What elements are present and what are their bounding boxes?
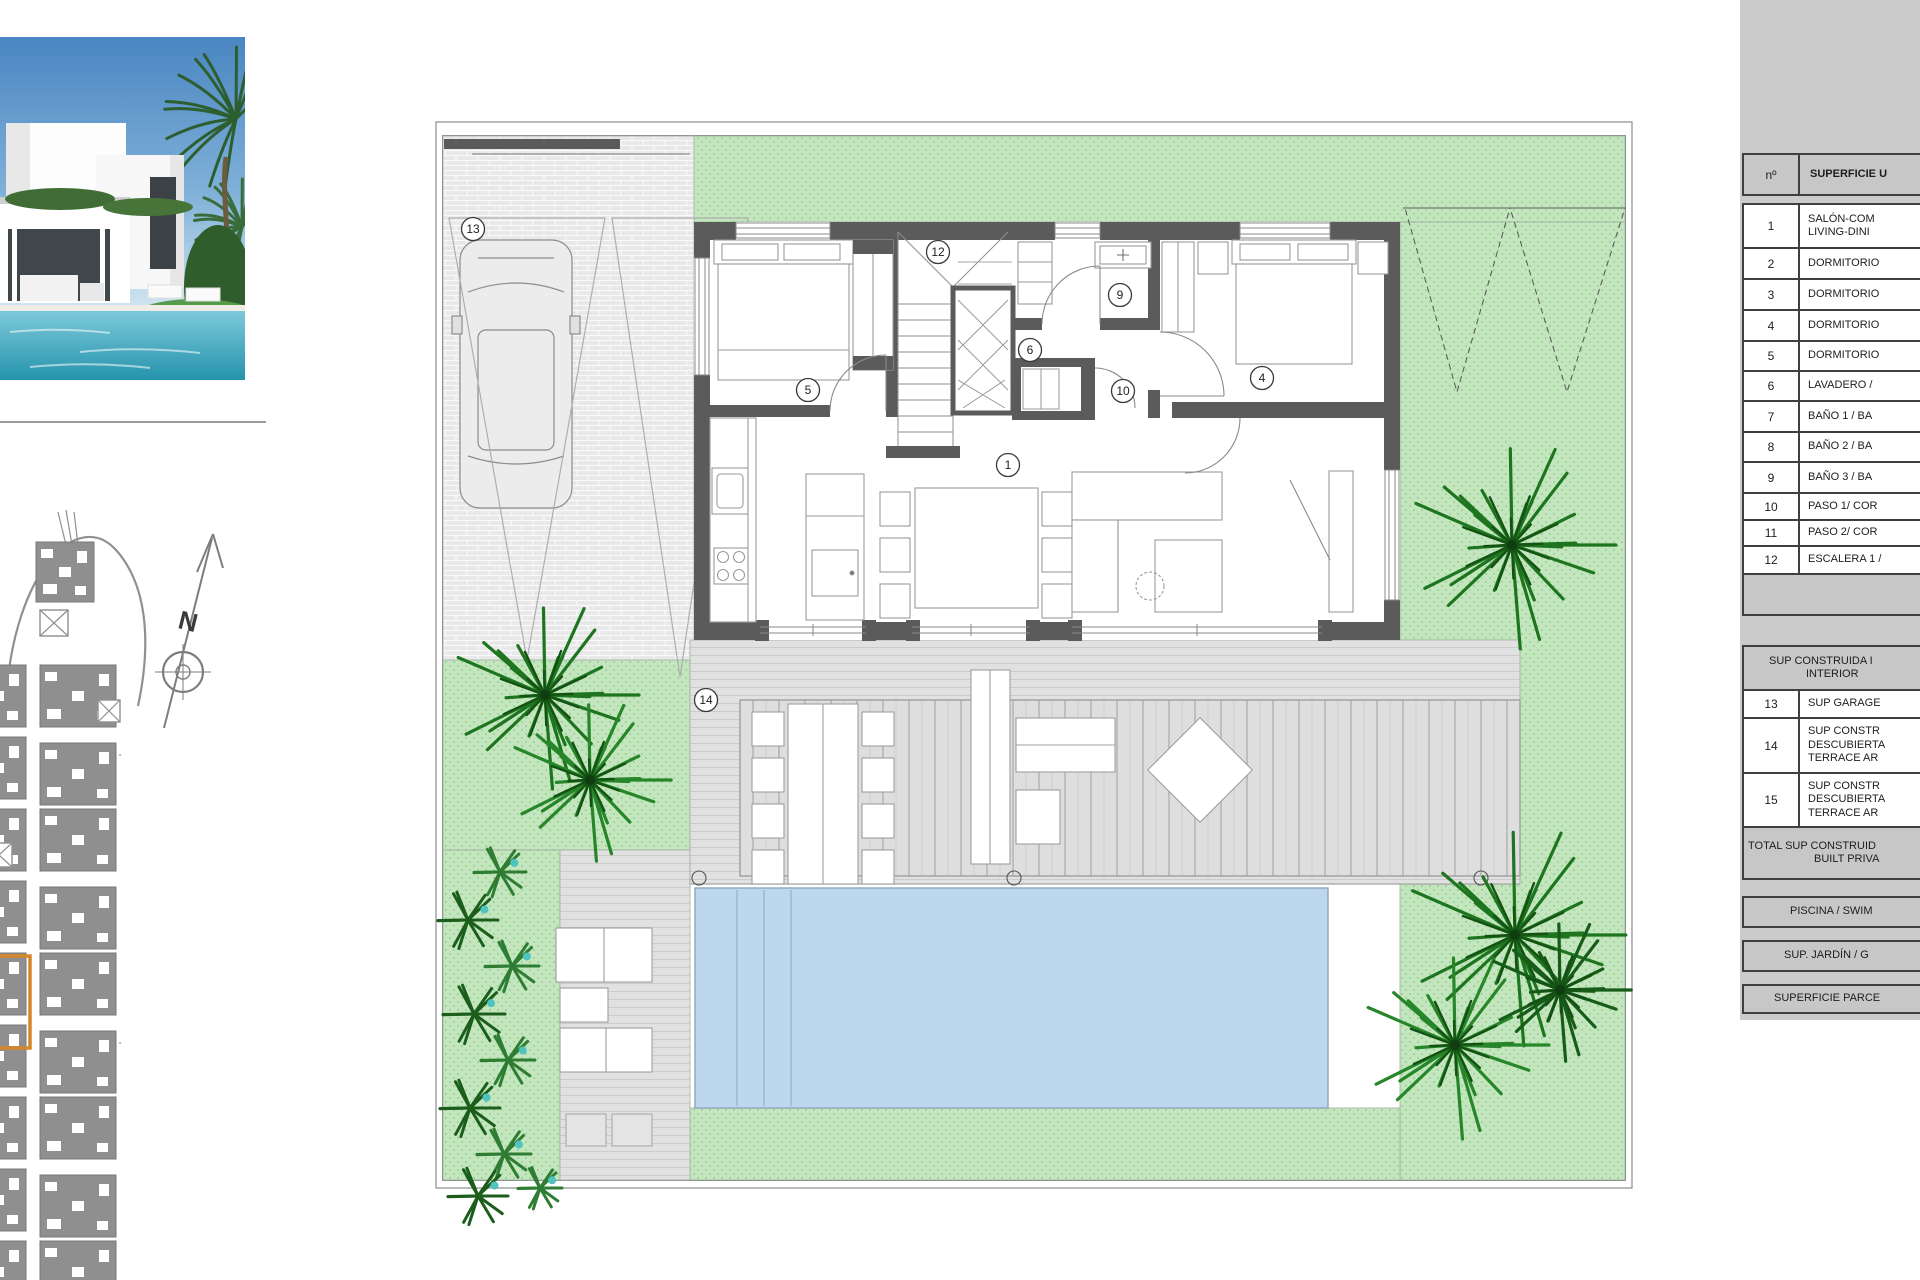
table-row-number: 6 xyxy=(1744,372,1800,400)
floor-plan-canvas: N 1312956104114 xyxy=(0,0,1920,1280)
table-row-number: 2 xyxy=(1744,249,1800,278)
table-row-label: SUP. JARDÍN / G xyxy=(1744,942,1920,970)
garden-top xyxy=(690,136,1625,222)
table-row-label: ESCALERA 1 / xyxy=(1800,547,1920,573)
table-row-label: SUPERFICIE U xyxy=(1800,155,1920,194)
table-row-number: 5 xyxy=(1744,342,1800,370)
table-row-label: DORMITORIO xyxy=(1800,280,1920,309)
table-row: SUP. JARDÍN / G xyxy=(1742,940,1920,970)
table-row-label xyxy=(1742,616,1920,645)
site-unit xyxy=(0,1241,26,1280)
table-row xyxy=(1742,614,1920,645)
site-unit xyxy=(40,809,116,871)
svg-text:1: 1 xyxy=(1005,458,1012,472)
table-row: 1SALÓN-COMLIVING-DINI xyxy=(1742,203,1920,247)
table-row-label: DORMITORIO xyxy=(1800,249,1920,278)
table-row: 10PASO 1/ COR xyxy=(1742,492,1920,519)
room-label-12: 12 xyxy=(927,241,950,264)
table-row: 14SUP CONSTRDESCUBIERTATERRACE AR xyxy=(1742,717,1920,772)
site-plan: N xyxy=(0,510,223,1280)
room-label-6: 6 xyxy=(1019,339,1042,362)
table-row-number: 12 xyxy=(1744,547,1800,573)
table-row-label xyxy=(1742,928,1920,940)
site-unit xyxy=(40,743,116,805)
table-row: 3DORMITORIO xyxy=(1742,278,1920,309)
table-row-label: BAÑO 1 / BA xyxy=(1800,402,1920,431)
table-row: 5DORMITORIO xyxy=(1742,340,1920,370)
table-row-label: DORMITORIO xyxy=(1800,342,1920,370)
entrance-gate-wall xyxy=(444,139,620,149)
table-row-label xyxy=(1742,880,1920,896)
table-row: 8BAÑO 2 / BA xyxy=(1742,431,1920,461)
svg-text:4: 4 xyxy=(1259,371,1266,385)
table-row: 4DORMITORIO xyxy=(1742,309,1920,340)
site-unit xyxy=(40,1241,116,1280)
garden-left-patch xyxy=(443,647,690,850)
table-row: 13SUP GARAGE xyxy=(1742,689,1920,717)
table-row: 15SUP CONSTRDESCUBIERTATERRACE AR xyxy=(1742,772,1920,826)
room-label-1: 1 xyxy=(997,454,1020,477)
table-row-label: TOTAL SUP CONSTRUIDBUILT PRIVA xyxy=(1744,828,1920,878)
table-row-number: 9 xyxy=(1744,463,1800,492)
site-unit xyxy=(40,1031,116,1093)
svg-text:6: 6 xyxy=(1027,343,1034,357)
table-row: SUPERFICIE PARCE xyxy=(1742,984,1920,1014)
table-row: 6LAVADERO / xyxy=(1742,370,1920,400)
table-row-label: SUP CONSTRDESCUBIERTATERRACE AR xyxy=(1800,774,1920,826)
table-row-label: SUP CONSTRDESCUBIERTATERRACE AR xyxy=(1800,719,1920,772)
room-label-14: 14 xyxy=(695,689,718,712)
site-unit xyxy=(0,881,26,943)
table-row-label: SALÓN-COMLIVING-DINI xyxy=(1800,205,1920,247)
table-row-number: 3 xyxy=(1744,280,1800,309)
table-row: nºSUPERFICIE U xyxy=(1742,153,1920,194)
svg-text:10: 10 xyxy=(1116,384,1130,398)
table-row-number: 7 xyxy=(1744,402,1800,431)
table-row-label: SUP CONSTRUIDA IINTERIOR xyxy=(1744,647,1920,689)
room-label-4: 4 xyxy=(1251,367,1274,390)
table-row-label xyxy=(1742,196,1920,203)
svg-text:14: 14 xyxy=(699,693,713,707)
site-unit xyxy=(36,542,94,602)
table-row-label: PASO 2/ COR xyxy=(1800,521,1920,545)
table-row-number: 10 xyxy=(1744,494,1800,519)
table-row-number: 15 xyxy=(1744,774,1800,826)
table-row-number: 14 xyxy=(1744,719,1800,772)
table-row: 9BAÑO 3 / BA xyxy=(1742,461,1920,492)
site-unit xyxy=(0,953,26,1015)
table-row-label: PISCINA / SWIM xyxy=(1744,898,1920,926)
site-unit xyxy=(0,1169,26,1231)
site-stair-symbol xyxy=(98,700,120,722)
site-unit xyxy=(40,1175,116,1237)
table-row-label: SUP GARAGE xyxy=(1800,691,1920,717)
table-row-label xyxy=(1742,972,1920,984)
svg-text:13: 13 xyxy=(466,222,480,236)
house xyxy=(694,222,1400,641)
table-row xyxy=(1742,926,1920,940)
svg-text:12: 12 xyxy=(931,245,945,259)
table-row-label: BAÑO 2 / BA xyxy=(1800,433,1920,461)
table-row-label: DORMITORIO xyxy=(1800,311,1920,340)
villa-photo xyxy=(0,37,245,380)
table-row-label: BAÑO 3 / BA xyxy=(1800,463,1920,492)
photo-divider-line xyxy=(0,421,266,423)
table-row-number: 13 xyxy=(1744,691,1800,717)
site-unit xyxy=(0,1097,26,1159)
swimming-pool xyxy=(695,888,1328,1108)
table-row xyxy=(1742,573,1920,614)
site-unit-blocks xyxy=(0,542,120,1280)
surface-area-table: nºSUPERFICIE U1SALÓN-COMLIVING-DINI2DORM… xyxy=(1742,153,1920,1014)
table-row xyxy=(1742,194,1920,203)
villa-photo-art xyxy=(0,37,245,380)
room-label-13: 13 xyxy=(462,218,485,241)
table-row: SUP CONSTRUIDA IINTERIOR xyxy=(1742,645,1920,689)
svg-text:9: 9 xyxy=(1117,288,1124,302)
table-row: PISCINA / SWIM xyxy=(1742,896,1920,926)
site-unit xyxy=(40,887,116,949)
table-row: 2DORMITORIO xyxy=(1742,247,1920,278)
site-unit xyxy=(0,1025,26,1087)
table-row: 11PASO 2/ COR xyxy=(1742,519,1920,545)
table-row xyxy=(1742,878,1920,896)
room-label-9: 9 xyxy=(1109,284,1132,307)
room-label-10: 10 xyxy=(1112,380,1135,403)
site-stair-symbol xyxy=(40,610,68,636)
table-row xyxy=(1742,970,1920,984)
table-row-number: 1 xyxy=(1744,205,1800,247)
table-row: 12ESCALERA 1 / xyxy=(1742,545,1920,573)
svg-text:5: 5 xyxy=(805,383,812,397)
site-unit xyxy=(40,1097,116,1159)
table-row-number: 4 xyxy=(1744,311,1800,340)
laundry-room xyxy=(1012,358,1095,420)
table-row-number: nº xyxy=(1744,155,1800,194)
compass-north-label: N xyxy=(175,604,200,638)
table-row: 7BAÑO 1 / BA xyxy=(1742,400,1920,431)
table-row-label: SUPERFICIE PARCE xyxy=(1744,986,1920,1012)
compass: N xyxy=(155,534,223,728)
photo-pool xyxy=(0,305,245,380)
site-unit xyxy=(0,665,26,727)
table-row: TOTAL SUP CONSTRUIDBUILT PRIVA xyxy=(1742,826,1920,878)
site-unit xyxy=(0,737,26,799)
site-stair-symbol xyxy=(0,843,12,867)
table-row-label xyxy=(1744,575,1920,614)
table-row-number: 11 xyxy=(1744,521,1800,545)
table-row-label: LAVADERO / xyxy=(1800,372,1920,400)
site-unit xyxy=(40,953,116,1015)
room-label-5: 5 xyxy=(797,379,820,402)
table-row-label: PASO 1/ COR xyxy=(1800,494,1920,519)
table-row-number: 8 xyxy=(1744,433,1800,461)
